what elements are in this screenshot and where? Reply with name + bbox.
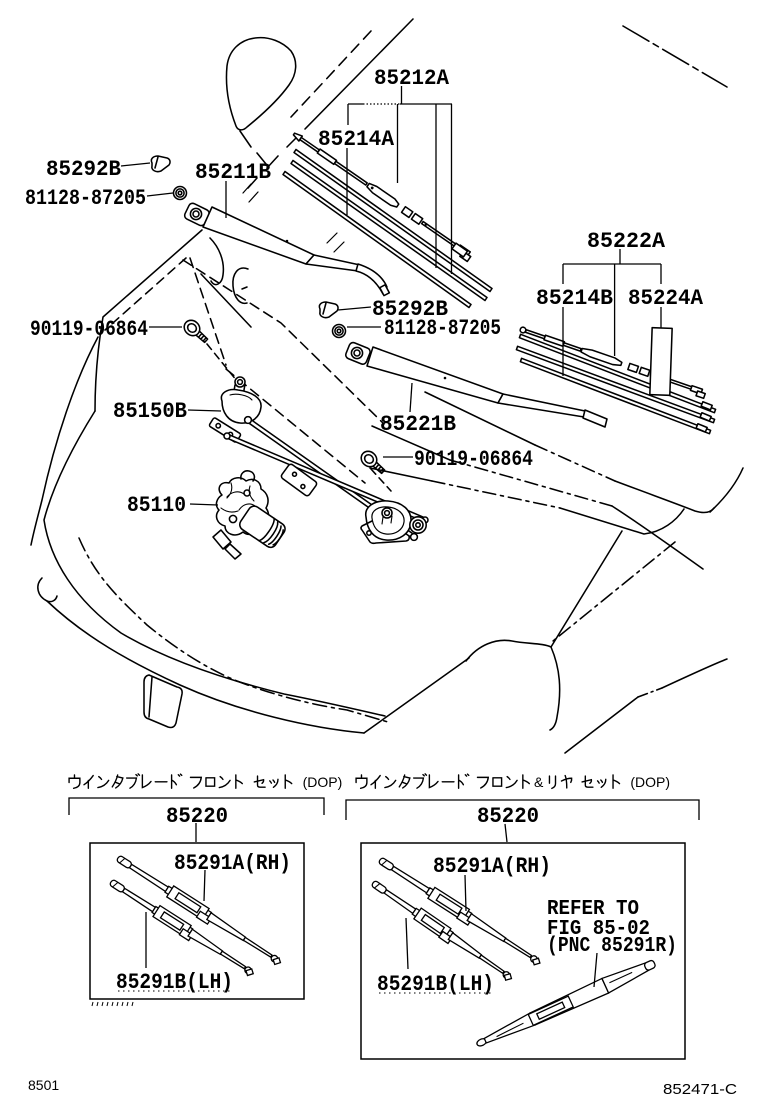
svg-text:90119-06864: 90119-06864 <box>30 317 148 342</box>
svg-text:85224A: 85224A <box>628 286 704 311</box>
svg-text:85220: 85220 <box>477 804 539 829</box>
svg-text:85212A: 85212A <box>374 66 450 91</box>
svg-text:85214B: 85214B <box>536 286 613 311</box>
svg-text:&: & <box>534 774 544 790</box>
svg-text:85291A(RH): 85291A(RH) <box>174 851 291 876</box>
svg-text:85291A(RH): 85291A(RH) <box>433 854 551 879</box>
svg-text:81128-87205: 81128-87205 <box>25 186 146 211</box>
svg-text:(DOP): (DOP) <box>303 774 343 790</box>
svg-text:85220: 85220 <box>166 804 228 829</box>
svg-text:(DOP): (DOP) <box>630 774 670 790</box>
svg-text:85292B: 85292B <box>46 157 121 182</box>
svg-text:85211B: 85211B <box>195 160 271 185</box>
svg-text:85221B: 85221B <box>380 412 456 437</box>
svg-text:85110: 85110 <box>127 493 186 518</box>
svg-text:8501: 8501 <box>28 1077 59 1093</box>
svg-text:85214A: 85214A <box>318 127 395 152</box>
svg-text:852471-C: 852471-C <box>663 1081 737 1098</box>
svg-text:90119-06864: 90119-06864 <box>414 447 533 472</box>
svg-text:85150B: 85150B <box>113 399 187 424</box>
svg-text:85222A: 85222A <box>587 229 666 254</box>
svg-text:81128-87205: 81128-87205 <box>384 316 501 341</box>
svg-text:(PNC 85291R): (PNC 85291R) <box>547 935 677 958</box>
